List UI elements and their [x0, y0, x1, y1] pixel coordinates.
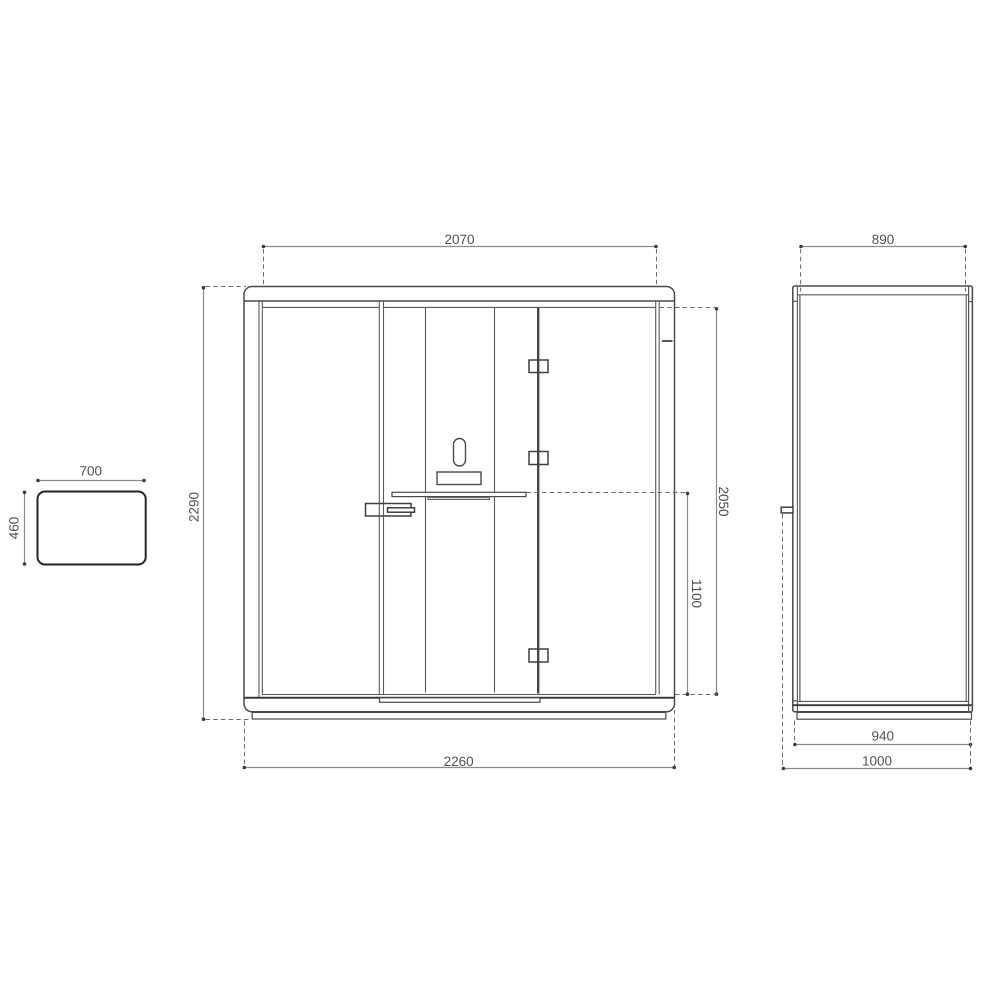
svg-text:700: 700 — [80, 463, 103, 478]
svg-text:940: 940 — [872, 728, 895, 743]
svg-text:2050: 2050 — [716, 486, 731, 516]
svg-text:460: 460 — [6, 517, 21, 540]
svg-text:890: 890 — [872, 232, 895, 247]
svg-text:2260: 2260 — [444, 754, 474, 769]
svg-text:2290: 2290 — [186, 492, 201, 522]
svg-text:1100: 1100 — [689, 579, 704, 608]
svg-text:1000: 1000 — [862, 753, 892, 768]
svg-text:2070: 2070 — [444, 232, 474, 247]
